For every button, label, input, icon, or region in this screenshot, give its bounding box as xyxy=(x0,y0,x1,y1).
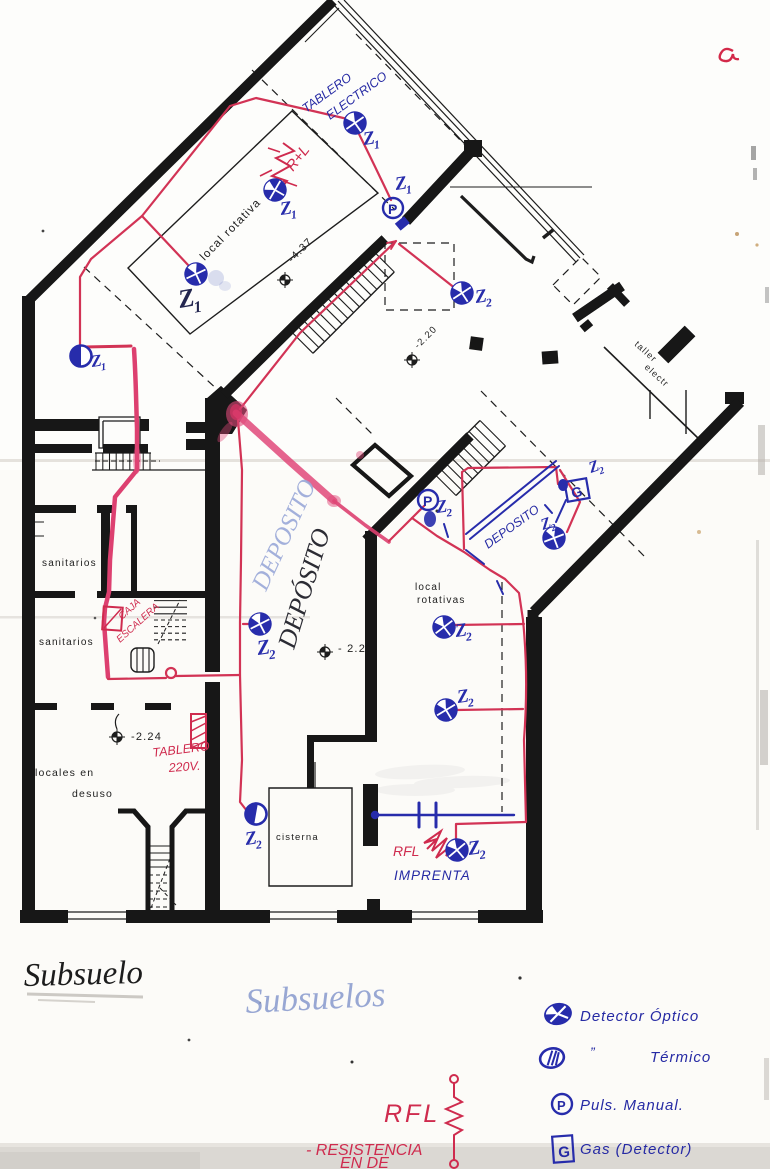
svg-text:sanitarios: sanitarios xyxy=(42,558,97,569)
svg-text:sanitarios: sanitarios xyxy=(39,637,94,648)
svg-text:Térmico: Térmico xyxy=(650,1049,711,1066)
svg-text:Gas (Detector): Gas (Detector) xyxy=(580,1141,692,1158)
svg-text:-2.24: -2.24 xyxy=(131,731,162,743)
svg-text:desuso: desuso xyxy=(72,788,113,800)
svg-text:IMPRENTA: IMPRENTA xyxy=(394,868,471,883)
svg-text:P: P xyxy=(423,493,432,509)
svg-text:rotativas: rotativas xyxy=(417,595,466,606)
svg-text:G: G xyxy=(558,1144,571,1162)
svg-text:P: P xyxy=(388,201,397,217)
svg-text:Subsuelos: Subsuelos xyxy=(244,975,386,1021)
svg-text:cisterna: cisterna xyxy=(276,832,319,843)
svg-text:RFL: RFL xyxy=(384,1100,440,1128)
svg-text:Detector Óptico: Detector Óptico xyxy=(580,1008,699,1025)
svg-text:RFL: RFL xyxy=(393,843,419,859)
svg-text:local: local xyxy=(415,582,442,593)
svg-text:EN DE: EN DE xyxy=(340,1155,389,1169)
svg-text:Subsuelo: Subsuelo xyxy=(23,955,143,994)
svg-text:Puls. Manual.: Puls. Manual. xyxy=(580,1097,684,1114)
svg-text:P: P xyxy=(557,1098,566,1113)
svg-text:locales en: locales en xyxy=(35,767,94,779)
svg-text:220V.: 220V. xyxy=(167,759,201,775)
